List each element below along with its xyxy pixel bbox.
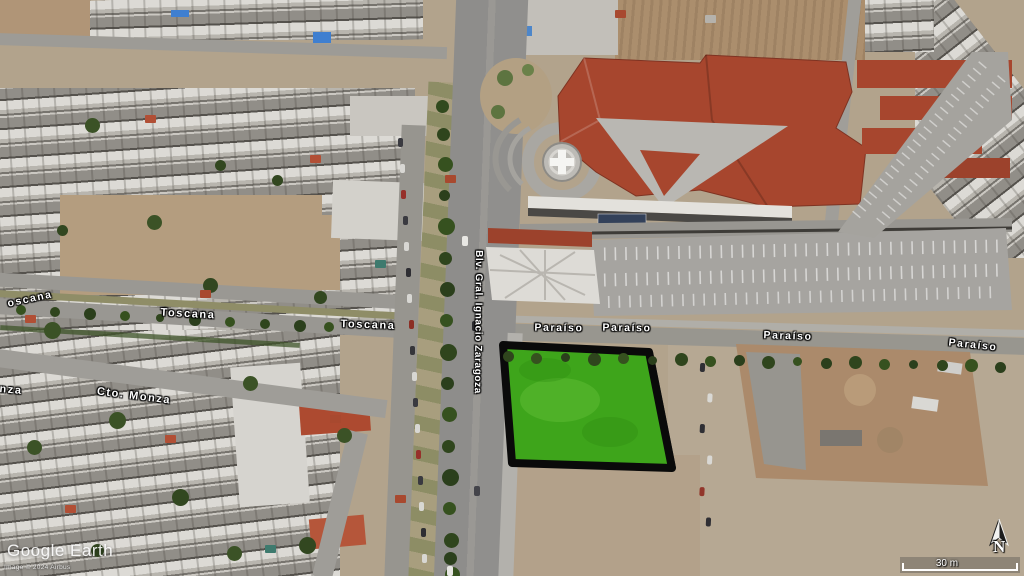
google-earth-watermark: Google Earth — [7, 541, 113, 561]
imagery-attribution: Image © 2024 Airbus — [4, 564, 71, 571]
street-label-monza-partial: nza — [0, 383, 23, 397]
scale-bar: 30 m — [900, 557, 1020, 573]
gravel-pile — [844, 374, 876, 406]
north-label: N — [993, 537, 1005, 557]
garden-tree — [491, 105, 505, 119]
parcel-grass-patch — [520, 378, 600, 422]
gravel-pile — [877, 427, 903, 453]
map-canvas[interactable]: oscana Toscana Toscana Blv. Gral. Ignaci… — [0, 0, 1024, 576]
street-label-paraiso: Paraíso — [534, 322, 583, 335]
container — [820, 430, 862, 446]
parcel-grass-patch — [582, 417, 638, 447]
boulevard-median-trees — [436, 100, 449, 113]
parked-cars-boulevard — [398, 138, 403, 147]
street-label-paraiso: Paraíso — [602, 322, 651, 335]
street-label-paraiso: Paraíso — [763, 329, 813, 343]
garden-tree — [522, 64, 534, 76]
roof-accents — [145, 115, 156, 123]
helipad-icon — [543, 143, 581, 181]
scale-bar-label: 30 m — [900, 558, 994, 569]
parcel-grass-patch — [519, 358, 571, 382]
garden-tree — [497, 70, 513, 86]
parked-cars-east — [700, 363, 705, 372]
parking-lot-main — [590, 228, 1012, 316]
paraiso-street-trees — [503, 351, 514, 362]
neighborhood-trees — [85, 118, 100, 133]
map-features-layer — [0, 0, 1024, 576]
street-label-toscana: Toscana — [340, 318, 395, 332]
street-label-boulevard: Blv. Gral. Ignacio Zaragoza — [472, 250, 484, 394]
cars-on-road — [462, 236, 468, 246]
